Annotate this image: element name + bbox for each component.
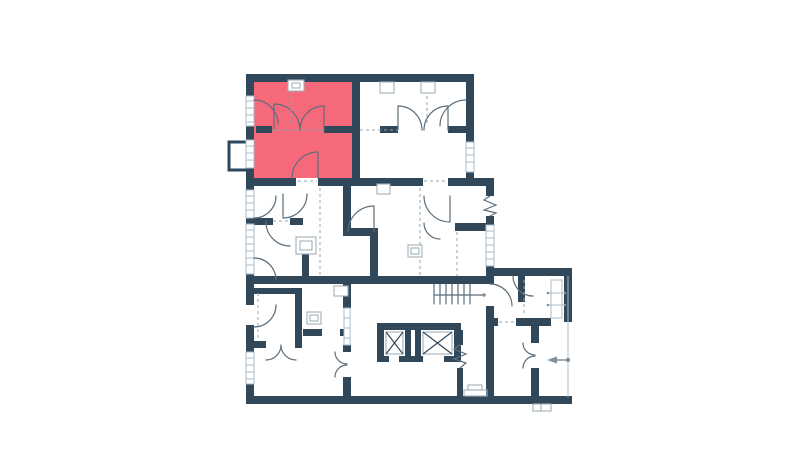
stair-direction-dot [482,293,486,297]
vent-shaft [288,80,304,91]
staircase [434,284,486,304]
window [246,140,254,168]
window [486,225,494,266]
window [466,142,474,172]
entrance-arrow-head [547,357,557,364]
entrance-double-door [523,343,535,368]
wall-bottom [246,396,572,404]
elevator-shaft [386,332,403,354]
stair-window-column [547,280,567,318]
entrance-arrow-dot [566,358,570,362]
floor-plan [0,0,800,471]
floor-plan-canvas [0,0,800,471]
wall-top [246,74,474,82]
window [246,96,254,126]
door-arc [254,305,276,327]
vent-shaft [334,286,348,296]
vent-shaft [408,245,422,257]
window [246,224,254,274]
wall-unit-divider [352,82,360,178]
vent-shaft [296,237,316,254]
vent-shaft [307,312,321,324]
accordion-door [484,196,496,216]
door-arc [398,106,422,130]
vent-shaft [377,184,390,194]
door-arc [424,106,448,130]
door-arc [254,196,276,218]
door-arc [424,223,440,239]
door-arc [266,222,290,246]
door-arc [283,194,307,218]
double-door-arc [335,352,347,377]
balcony [229,142,248,170]
glazed-partition [344,308,350,345]
door-arc [424,196,450,222]
door-arc [490,284,512,306]
window [246,352,254,384]
vent-shaft [421,82,435,93]
double-door-arc [266,345,296,360]
elevator-shaft [423,332,452,354]
window [246,190,254,218]
door-arc [440,100,466,126]
vent-shaft [380,82,394,93]
